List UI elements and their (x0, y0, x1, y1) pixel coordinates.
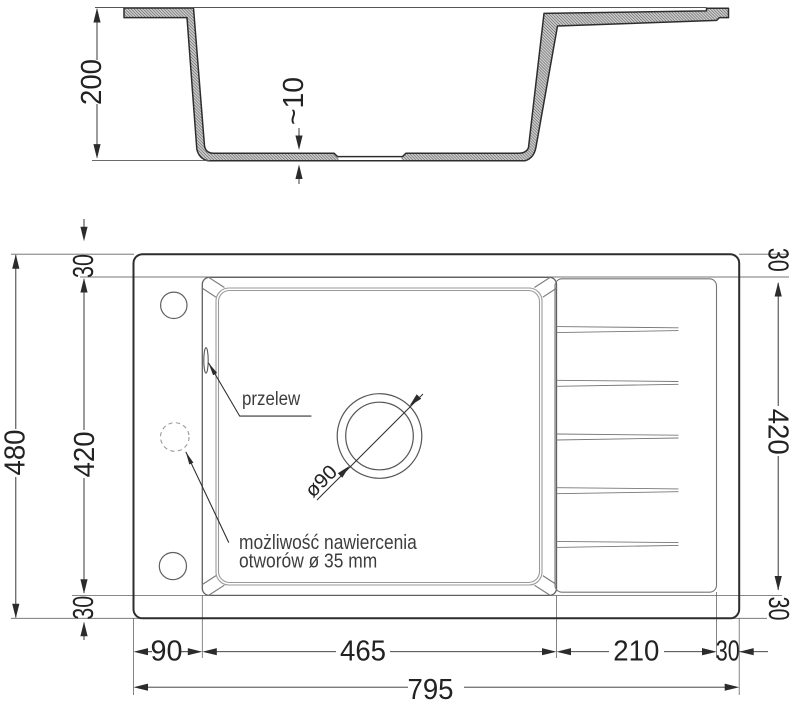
svg-text:210: 210 (613, 636, 659, 668)
svg-text:200: 200 (76, 59, 108, 105)
svg-text:30: 30 (716, 636, 740, 668)
svg-text:480: 480 (0, 430, 31, 476)
svg-text:otworów ø 35 mm: otworów ø 35 mm (239, 549, 377, 571)
svg-text:30: 30 (68, 596, 100, 620)
svg-text:ø90: ø90 (301, 461, 342, 502)
svg-text:30: 30 (68, 254, 100, 278)
svg-text:~10: ~10 (278, 77, 310, 125)
svg-text:przelew: przelew (242, 388, 301, 409)
svg-text:465: 465 (340, 636, 386, 668)
svg-text:90: 90 (151, 636, 183, 668)
svg-text:420: 420 (762, 409, 794, 455)
svg-text:420: 420 (69, 431, 101, 477)
svg-text:795: 795 (408, 674, 454, 706)
svg-text:30: 30 (762, 597, 794, 621)
svg-text:30: 30 (762, 248, 794, 272)
